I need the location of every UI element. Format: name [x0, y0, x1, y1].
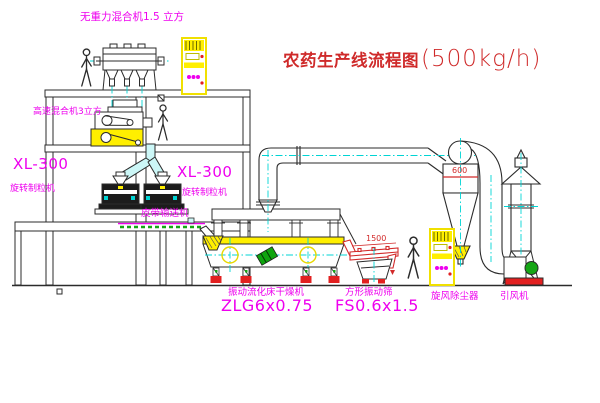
label-granulator-left-name: 旋转制粒机 — [10, 185, 55, 194]
label-belt-conveyor: 皮带输送机 — [141, 209, 189, 219]
dimension-cyclone: 600 — [452, 167, 467, 175]
diagram-title: 农药生产线流程图 (500kg/h) — [283, 46, 541, 72]
label-granulator-right-name: 旋转制粒机 — [182, 189, 227, 198]
title-capacity: (500kg/h) — [421, 46, 541, 72]
fluid-bed-dryer — [203, 209, 356, 283]
worker-figure-ground — [408, 237, 419, 278]
label-cyclone: 旋风除尘器 — [431, 292, 479, 302]
label-high-speed-mixer: 高速混合机3立方 — [33, 108, 102, 117]
label-dryer-model: ZLG6x0.75 — [221, 298, 313, 314]
dimension-screen: 1500 — [366, 235, 386, 243]
induced-draft-fan — [504, 257, 543, 285]
title-text: 农药生产线流程图 — [283, 47, 419, 71]
control-cabinet-top — [182, 38, 206, 94]
label-granulator-left-model: XL-300 — [13, 157, 68, 172]
label-gravity-mixer: 无重力混合机1.5 立方 — [80, 12, 184, 23]
label-screen-model: FS0.6x1.5 — [335, 298, 419, 314]
label-granulator-right-model: XL-300 — [177, 165, 232, 180]
flow-diagram-canvas: 农药生产线流程图 (500kg/h) 无重力混合机1.5 立方 高速混合机3立方… — [0, 0, 600, 403]
worker-figure-second-floor — [159, 105, 168, 140]
vibrating-screen — [343, 240, 398, 284]
label-fan: 引风机 — [500, 292, 529, 302]
worker-figure-top-floor — [82, 49, 92, 86]
control-cabinet-ground — [430, 229, 454, 285]
